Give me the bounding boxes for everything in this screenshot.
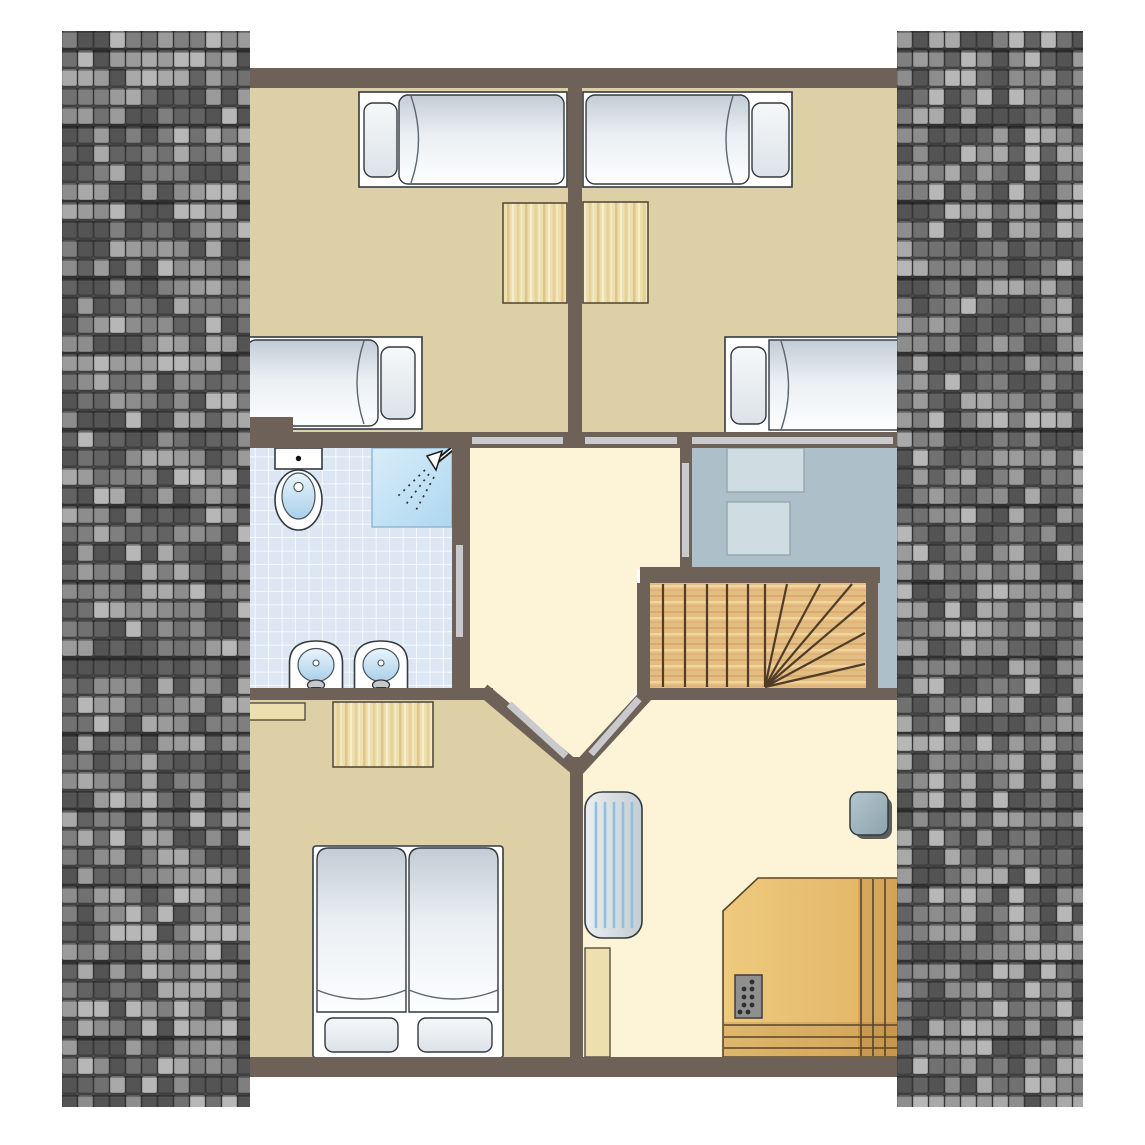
roof-tile [945, 240, 960, 257]
door-bedroom-top-left [472, 437, 563, 444]
roof-tile [897, 1000, 912, 1017]
roof-tile [961, 183, 976, 200]
roof-tile [142, 392, 157, 409]
roof-tile [929, 905, 944, 922]
roof-batten-shadow [897, 732, 1083, 737]
roof-batten-shadow [62, 808, 250, 813]
roof-tile [126, 544, 141, 561]
roof-tile [126, 525, 141, 542]
roof-tile [110, 696, 125, 713]
roof-tile [62, 601, 77, 618]
mattress-left [317, 848, 406, 1012]
roof-tile [62, 88, 77, 105]
roof-tile [961, 335, 976, 352]
roof-course-shadow [897, 848, 1083, 850]
roof-tile [222, 316, 237, 333]
roof-tile [62, 468, 77, 485]
wall-dressing-bottom [640, 567, 880, 583]
roof-tile [206, 525, 221, 542]
roof-tile [110, 1057, 125, 1074]
mattress-right [409, 848, 498, 1012]
roof-course-shadow [897, 487, 1083, 489]
roof-tile [190, 981, 205, 998]
roof-tile [945, 829, 960, 846]
roof-tile [158, 69, 173, 86]
washbasin-2 [355, 641, 408, 693]
roof-tile [1025, 449, 1040, 466]
roof-tile [993, 620, 1008, 637]
roof-tile [110, 525, 125, 542]
roof-course-shadow [62, 31, 250, 33]
roof-tile [1041, 563, 1056, 580]
roof-course-shadow [62, 772, 250, 774]
roof-tile [222, 1019, 237, 1036]
roof-batten-shadow [897, 1036, 1083, 1041]
roof-tile [158, 1019, 173, 1036]
roof-course-shadow [897, 297, 1083, 299]
roof-tile [1041, 848, 1056, 865]
roof-tile [993, 829, 1008, 846]
roof-tile [78, 943, 93, 960]
roof-course-shadow [62, 164, 250, 166]
roof-tile [94, 924, 109, 941]
roof-tile [62, 392, 77, 409]
roof-tile [1057, 829, 1072, 846]
roof-tile [94, 848, 109, 865]
roof-tile [190, 867, 205, 884]
roof-tile [897, 145, 912, 162]
roof-course-shadow [62, 981, 250, 983]
roof-tile [190, 848, 205, 865]
roof-tile [1025, 1076, 1040, 1093]
roof-tile [174, 620, 189, 637]
roof-tile [961, 88, 976, 105]
roof-tile [174, 69, 189, 86]
roof-tile [174, 107, 189, 124]
roof-tile [1057, 867, 1072, 884]
roof-tile [993, 145, 1008, 162]
stool-seat [850, 792, 888, 835]
roof-tile [126, 1019, 141, 1036]
roof-tile [62, 164, 77, 181]
roof-tile [110, 924, 125, 941]
roof-course-shadow [62, 525, 250, 527]
roof-tile [174, 905, 189, 922]
roof-tile [1041, 943, 1056, 960]
roof-tile [190, 772, 205, 789]
roof-tile [1009, 240, 1024, 257]
roof-course-shadow [62, 563, 250, 565]
roof-tile [1025, 240, 1040, 257]
roof-tile [222, 981, 237, 998]
roof-tile [190, 259, 205, 276]
roof-tile [158, 316, 173, 333]
roof-tile [126, 335, 141, 352]
roof-tile [222, 601, 237, 618]
roof-tile [78, 905, 93, 922]
roof-tile [961, 943, 976, 960]
roof-tile [945, 677, 960, 694]
roof-tile [977, 164, 992, 181]
roof-tile [222, 449, 237, 466]
roof-tile [913, 1000, 928, 1017]
roof-tile [158, 544, 173, 561]
roof-tile [142, 1000, 157, 1017]
roof-tile [94, 69, 109, 86]
roof-tile [913, 677, 928, 694]
roof-tile [1041, 411, 1056, 428]
roof-tile [1009, 107, 1024, 124]
roof-tile [897, 221, 912, 238]
roof-tile [62, 1019, 77, 1036]
roof-tile [206, 905, 221, 922]
roof-tile [1009, 696, 1024, 713]
roof-course-shadow [897, 601, 1083, 603]
roof-tile [158, 88, 173, 105]
roof-tile [977, 373, 992, 390]
roof-tile [1057, 715, 1072, 732]
roof-tile [222, 753, 237, 770]
roof-tile [78, 867, 93, 884]
roof-tile [62, 1057, 77, 1074]
roof-tile [78, 525, 93, 542]
roof-tile [945, 392, 960, 409]
roof-batten-shadow [62, 580, 250, 585]
roof-tile [897, 1057, 912, 1074]
roof-tile [977, 1076, 992, 1093]
roof-tile [126, 905, 141, 922]
roof-tile [1025, 31, 1040, 48]
roof-course-shadow [897, 772, 1083, 774]
roof-tile [961, 1019, 976, 1036]
roof-tile [142, 639, 157, 656]
roof-tile [977, 487, 992, 504]
roof-tile [110, 620, 125, 637]
roof-tile [913, 905, 928, 922]
roof-tile [929, 145, 944, 162]
roof-tile [977, 601, 992, 618]
roof-tile [110, 943, 125, 960]
roof-tile [62, 848, 77, 865]
roof-tile [206, 107, 221, 124]
roof-tile [945, 753, 960, 770]
roof-tile [993, 1057, 1008, 1074]
basin-drain [313, 660, 319, 666]
roof-tile [142, 677, 157, 694]
floor-plan [0, 0, 1145, 1145]
mattress [586, 95, 749, 184]
roof-tile [1057, 696, 1072, 713]
roof-tile [945, 468, 960, 485]
stool [850, 792, 892, 839]
roof-tile [929, 487, 944, 504]
roof-tile [913, 373, 928, 390]
roof-tile [222, 715, 237, 732]
roof-tile [1009, 297, 1024, 314]
roof-tile [174, 1019, 189, 1036]
roof-tile [142, 867, 157, 884]
roof-tile [1009, 563, 1024, 580]
roof-tile [126, 867, 141, 884]
roof-tile [929, 411, 944, 428]
roof-tile [78, 88, 93, 105]
roof-tile [929, 69, 944, 86]
roof-course-shadow [897, 544, 1083, 546]
roof-tile [1009, 601, 1024, 618]
roof-tile [158, 639, 173, 656]
roof-tile [897, 487, 912, 504]
roof-tile [78, 373, 93, 390]
roof-batten-shadow [897, 124, 1083, 129]
roof-tile [961, 753, 976, 770]
roof-tile [78, 221, 93, 238]
roof-tile [78, 297, 93, 314]
wall-bathroom-bottom [245, 688, 493, 700]
roof-tile [993, 335, 1008, 352]
door-dressing-left [682, 463, 689, 557]
roof-tile [190, 164, 205, 181]
roof-tile [126, 468, 141, 485]
roof-tile [913, 867, 928, 884]
roof-course-shadow [62, 335, 250, 337]
roof-tile [977, 468, 992, 485]
roof-tile [1057, 449, 1072, 466]
roof-tile [1009, 487, 1024, 504]
roof-tile [961, 145, 976, 162]
roof-tile [158, 601, 173, 618]
roof-tile [1057, 31, 1072, 48]
roof-tile [62, 981, 77, 998]
roof-tile [897, 772, 912, 789]
roof-tile [110, 69, 125, 86]
roof-tile [158, 183, 173, 200]
roof-tile [222, 31, 237, 48]
roof-course-shadow [62, 411, 250, 413]
roof-batten-shadow [62, 884, 250, 889]
roof-tile [913, 411, 928, 428]
roof-tile [158, 696, 173, 713]
roof-tile [174, 772, 189, 789]
roof-tile [94, 259, 109, 276]
roof-tile [190, 696, 205, 713]
roof-course-shadow [897, 867, 1083, 869]
roof-tile [913, 183, 928, 200]
roof-tile [174, 563, 189, 580]
roof-tile [94, 867, 109, 884]
roof-tile [206, 1019, 221, 1036]
roof-course-shadow [897, 1019, 1083, 1021]
roof-tile [993, 525, 1008, 542]
roof-tile [142, 563, 157, 580]
roof-tile [190, 1076, 205, 1093]
roof-tile [110, 373, 125, 390]
roof-tile [1009, 715, 1024, 732]
roof-batten-shadow [62, 732, 250, 737]
roof-tile [190, 31, 205, 48]
roof-tile [913, 1057, 928, 1074]
roof-tile [1041, 164, 1056, 181]
roof-tile [961, 601, 976, 618]
roof-tile [142, 848, 157, 865]
roof-tile [78, 772, 93, 789]
roof-tile [206, 221, 221, 238]
roof-tile [110, 677, 125, 694]
roof-tile [158, 620, 173, 637]
roof-tile [1041, 1076, 1056, 1093]
roof-tile [158, 259, 173, 276]
roof-tile [945, 1019, 960, 1036]
roof-tile [993, 297, 1008, 314]
roof-tile [1025, 981, 1040, 998]
roof-tile [929, 791, 944, 808]
roof-tile [961, 468, 976, 485]
roof-tile [62, 563, 77, 580]
roof-tile [206, 145, 221, 162]
roof-tile [206, 297, 221, 314]
roof-tile [142, 487, 157, 504]
roof-tile [1009, 1019, 1024, 1036]
roof-tile [929, 183, 944, 200]
roof-tile [929, 221, 944, 238]
roof-tile [158, 1057, 173, 1074]
roof-tile [206, 829, 221, 846]
roof-batten-shadow [62, 124, 250, 129]
roof-tile [1025, 848, 1040, 865]
roof-batten-shadow [897, 580, 1083, 585]
roof-tile [62, 677, 77, 694]
foot-cushion-right [418, 1018, 492, 1052]
roof-tile [174, 981, 189, 998]
roof-course-shadow [62, 392, 250, 394]
roof-tile [126, 487, 141, 504]
roof-tile [961, 924, 976, 941]
roof-tile [190, 905, 205, 922]
roof-tile [222, 88, 237, 105]
roof-tile [206, 715, 221, 732]
roof-tile [993, 715, 1008, 732]
roof-tile [897, 905, 912, 922]
roof-tile [126, 316, 141, 333]
roof-tile [190, 468, 205, 485]
roof-course-shadow [62, 1057, 250, 1059]
roof-course-shadow [897, 240, 1083, 242]
roof-tile [126, 259, 141, 276]
roof-tile [993, 107, 1008, 124]
roof-tile [913, 335, 928, 352]
roof-tile [142, 259, 157, 276]
roof-tile [78, 848, 93, 865]
roof-tile [1041, 829, 1056, 846]
roof-tile [945, 221, 960, 238]
roof-tile [1025, 259, 1040, 276]
roof-tile [158, 468, 173, 485]
roof-tile [206, 259, 221, 276]
roof-tile [174, 791, 189, 808]
roof-course-shadow [897, 1000, 1083, 1002]
roof-tile [110, 145, 125, 162]
roof-tile [78, 1076, 93, 1093]
roof-tile [174, 373, 189, 390]
roof-tile [1057, 905, 1072, 922]
shower [372, 448, 452, 527]
roof-tile [1009, 392, 1024, 409]
roof-tile [62, 620, 77, 637]
roof-tile [94, 677, 109, 694]
roof-tile [945, 183, 960, 200]
roof-tile [174, 449, 189, 466]
roof-tile [78, 753, 93, 770]
roof-tile [1009, 69, 1024, 86]
roof-tile [206, 69, 221, 86]
roof-tile [945, 867, 960, 884]
roof-tile [993, 544, 1008, 561]
roof-tile [158, 753, 173, 770]
roof-tile [1041, 468, 1056, 485]
roof-course-shadow [62, 468, 250, 470]
roof-tile [897, 867, 912, 884]
roof-tile [977, 677, 992, 694]
roof-tile [78, 620, 93, 637]
roof-course-shadow [62, 620, 250, 622]
roof-tile [222, 468, 237, 485]
roof-tile [190, 1000, 205, 1017]
roof-tile [1041, 145, 1056, 162]
roof-tile [897, 924, 912, 941]
roof-tile [1009, 905, 1024, 922]
roof-tile [190, 449, 205, 466]
roof-tile [977, 107, 992, 124]
roof-tile [897, 240, 912, 257]
roof-tile [1009, 829, 1024, 846]
single-bed-3 [583, 92, 792, 187]
roof-tile [78, 601, 93, 618]
roof-tile [977, 829, 992, 846]
roof-batten-shadow [62, 428, 250, 433]
roof-tile [945, 943, 960, 960]
roof-tile [993, 848, 1008, 865]
roof-tile [222, 183, 237, 200]
roof-tile [945, 1000, 960, 1017]
roof-tile [94, 164, 109, 181]
roof-tile [126, 88, 141, 105]
roof-course-shadow [897, 183, 1083, 185]
toilet-water [282, 473, 315, 519]
roof-course-shadow [897, 373, 1083, 375]
roof-tile [78, 240, 93, 257]
roof-tile [110, 981, 125, 998]
pillow [381, 347, 415, 419]
roof-tile [190, 316, 205, 333]
roof-tile [929, 829, 944, 846]
roof-tile [110, 1019, 125, 1036]
roof-tile [190, 791, 205, 808]
roof-tile [142, 715, 157, 732]
roof-tile [126, 183, 141, 200]
roof-tile [222, 487, 237, 504]
roof-batten-shadow [62, 352, 250, 357]
roof-course-shadow [62, 1076, 250, 1078]
roof-tile [913, 259, 928, 276]
roof-tile [158, 240, 173, 257]
roof-tile [961, 1076, 976, 1093]
roof-tile [1025, 316, 1040, 333]
roof-tile [174, 943, 189, 960]
roof-tile [1057, 544, 1072, 561]
roof-tile [929, 107, 944, 124]
roof-tile [897, 69, 912, 86]
roof-tile [94, 772, 109, 789]
roof-right [897, 31, 1088, 1112]
